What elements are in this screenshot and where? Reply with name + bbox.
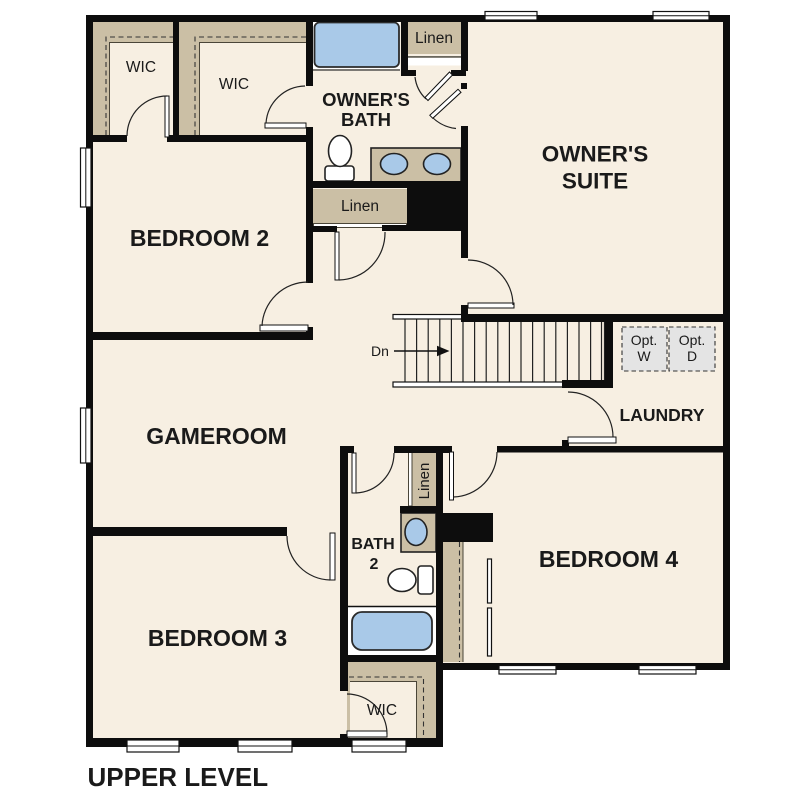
svg-text:2: 2 — [370, 556, 379, 573]
svg-text:BEDROOM 4: BEDROOM 4 — [539, 546, 679, 572]
svg-text:OWNER'S: OWNER'S — [322, 89, 410, 110]
svg-text:BEDROOM 2: BEDROOM 2 — [130, 225, 269, 251]
svg-text:WIC: WIC — [219, 76, 249, 93]
svg-text:Linen: Linen — [415, 30, 453, 47]
svg-text:Linen: Linen — [416, 463, 433, 500]
svg-text:BATH: BATH — [351, 536, 394, 553]
svg-text:WIC: WIC — [367, 702, 397, 719]
svg-text:Opt.: Opt. — [631, 332, 657, 348]
svg-text:LAUNDRY: LAUNDRY — [620, 405, 705, 425]
svg-text:Opt.: Opt. — [679, 332, 705, 348]
svg-text:D: D — [687, 348, 697, 364]
svg-text:SUITE: SUITE — [562, 169, 628, 194]
svg-text:OWNER'S: OWNER'S — [542, 142, 649, 167]
svg-text:BEDROOM 3: BEDROOM 3 — [148, 625, 287, 651]
svg-text:GAMEROOM: GAMEROOM — [146, 423, 287, 449]
svg-text:Linen: Linen — [341, 198, 379, 215]
svg-text:BATH: BATH — [341, 109, 391, 130]
svg-text:Dn: Dn — [371, 343, 389, 359]
svg-text:W: W — [637, 348, 651, 364]
svg-text:UPPER LEVEL: UPPER LEVEL — [88, 762, 269, 792]
svg-text:WIC: WIC — [126, 59, 156, 76]
